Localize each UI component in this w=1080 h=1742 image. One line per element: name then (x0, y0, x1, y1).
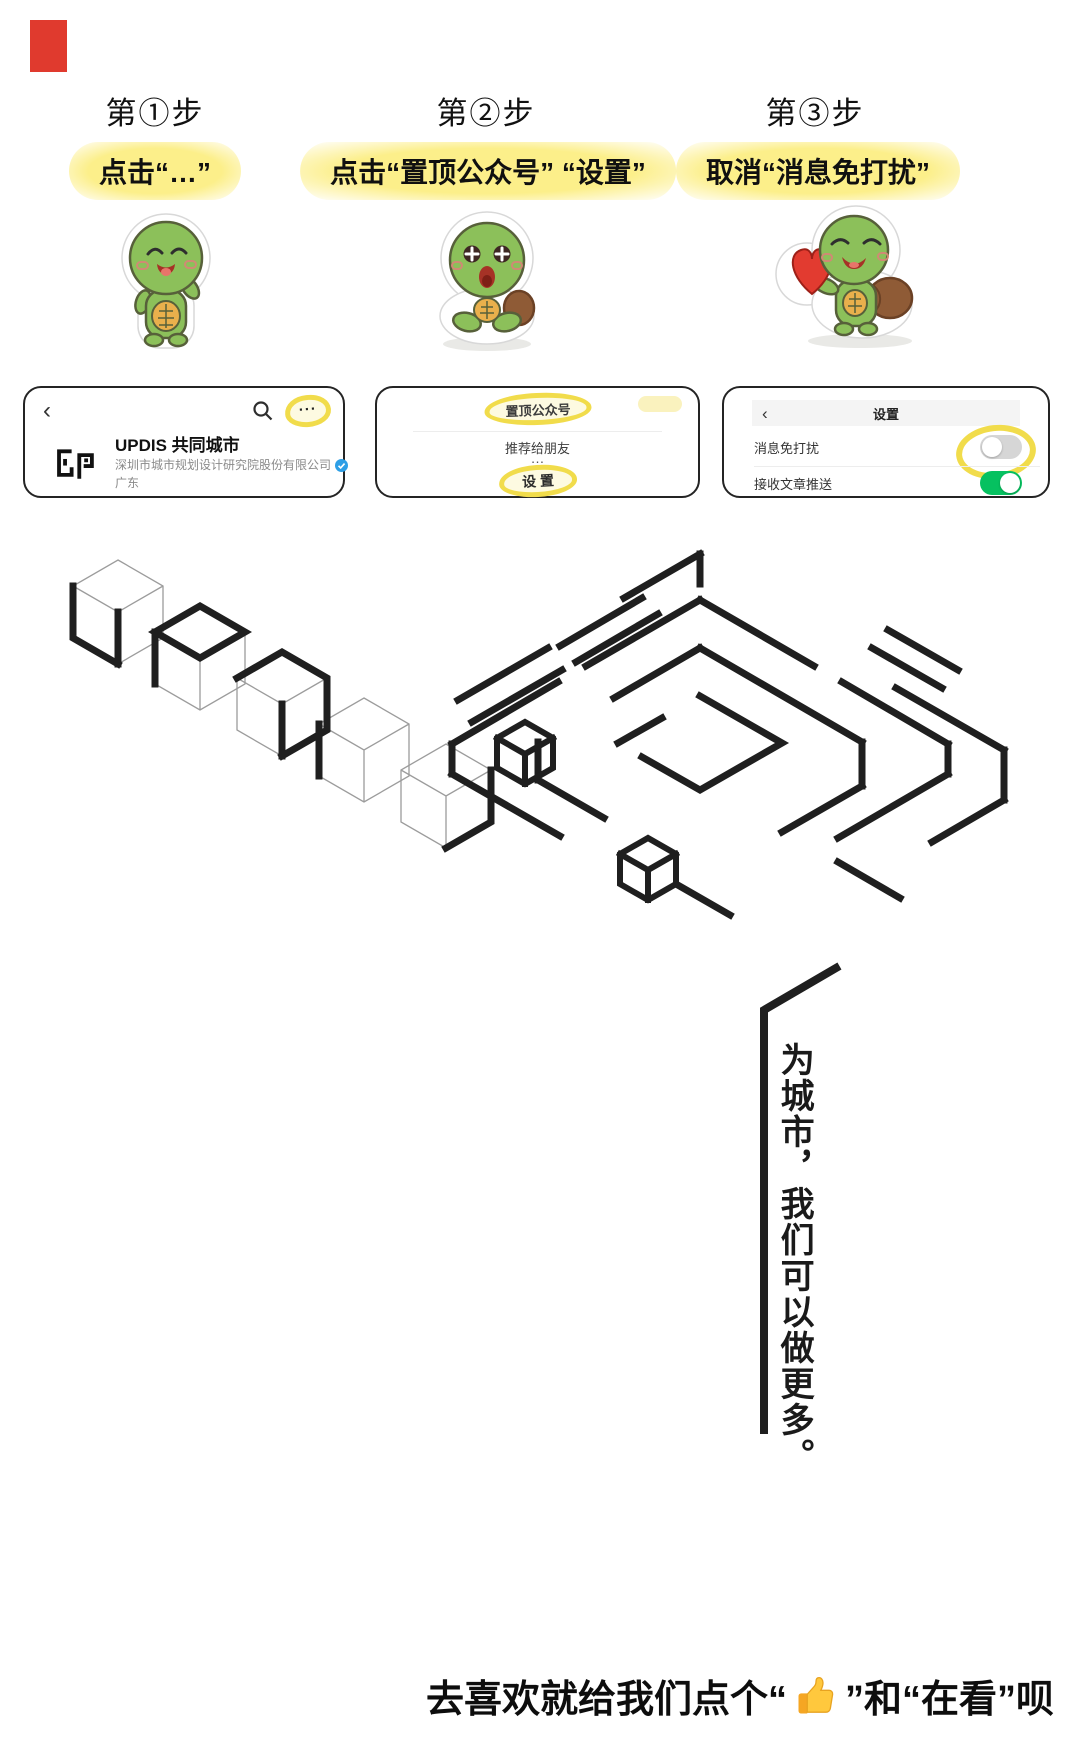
back-icon[interactable]: ‹ (43, 399, 51, 423)
mute-toggle[interactable] (980, 435, 1022, 459)
settings-card: ‹ 设置 消息免打扰 接收文章推送 (722, 386, 1050, 498)
menu-item-pin[interactable]: 置顶公众号 (483, 391, 591, 427)
isometric-artwork (0, 0, 1080, 1742)
search-icon[interactable] (251, 399, 275, 423)
company-name: 深圳市城市规划设计研究院股份有限公司 (115, 456, 331, 474)
menu-item-ellipsis[interactable]: … (377, 450, 698, 466)
poster-page: 第①步 第②步 第③步 点击“…” 点击“置顶公众号” “设置” 取消“消息免打… (0, 0, 1080, 1742)
settings-divider (754, 466, 1040, 467)
highlight-smudge (638, 396, 682, 412)
push-toggle[interactable] (980, 471, 1022, 495)
updis-logo-icon (53, 442, 99, 488)
footer-cta: 去喜欢就给我们点个“ ”和“在看”呗 (426, 1668, 1054, 1723)
more-button[interactable]: ··· (284, 393, 333, 429)
footer-text-suffix: ”和“在看”呗 (845, 1668, 1054, 1723)
more-dots-label: ··· (298, 400, 317, 419)
vertical-slogan: 为城市，我们可以做更多。 (774, 1042, 813, 1474)
menu-item-settings[interactable]: 设 置 (498, 463, 577, 499)
settings-title: 设置 (752, 404, 1020, 423)
menu-divider (413, 431, 662, 432)
mute-toggle-knob (982, 437, 1002, 457)
footer-text-prefix: 去喜欢就给我们点个“ (426, 1668, 787, 1723)
push-label: 接收文章推送 (754, 474, 832, 493)
pin-label: 置顶公众号 (505, 398, 571, 419)
push-toggle-knob (1000, 473, 1020, 493)
profile-card-body: UPDIS 共同城市 深圳市城市规划设计研究院股份有限公司 广东 (53, 436, 348, 492)
settings-label: 设 置 (521, 470, 554, 492)
thumbs-up-icon (795, 1675, 837, 1717)
account-region: 广东 (115, 474, 348, 492)
settings-row-push: 接收文章推送 (754, 470, 1022, 496)
verified-badge-icon (335, 459, 348, 472)
settings-header: ‹ 设置 (752, 400, 1020, 426)
settings-back-icon[interactable]: ‹ (762, 405, 768, 422)
profile-card: ‹ ··· UPDIS 共同城市 深圳市城市规划设计研究院股份有限公司 (23, 386, 345, 498)
mute-label: 消息免打扰 (754, 438, 819, 457)
profile-card-topbar: ‹ ··· (43, 395, 331, 427)
account-name: UPDIS 共同城市 (115, 436, 348, 456)
menu-card: 置顶公众号 推荐给朋友 … 设 置 (375, 386, 700, 498)
settings-row-mute: 消息免打扰 (754, 434, 1022, 460)
